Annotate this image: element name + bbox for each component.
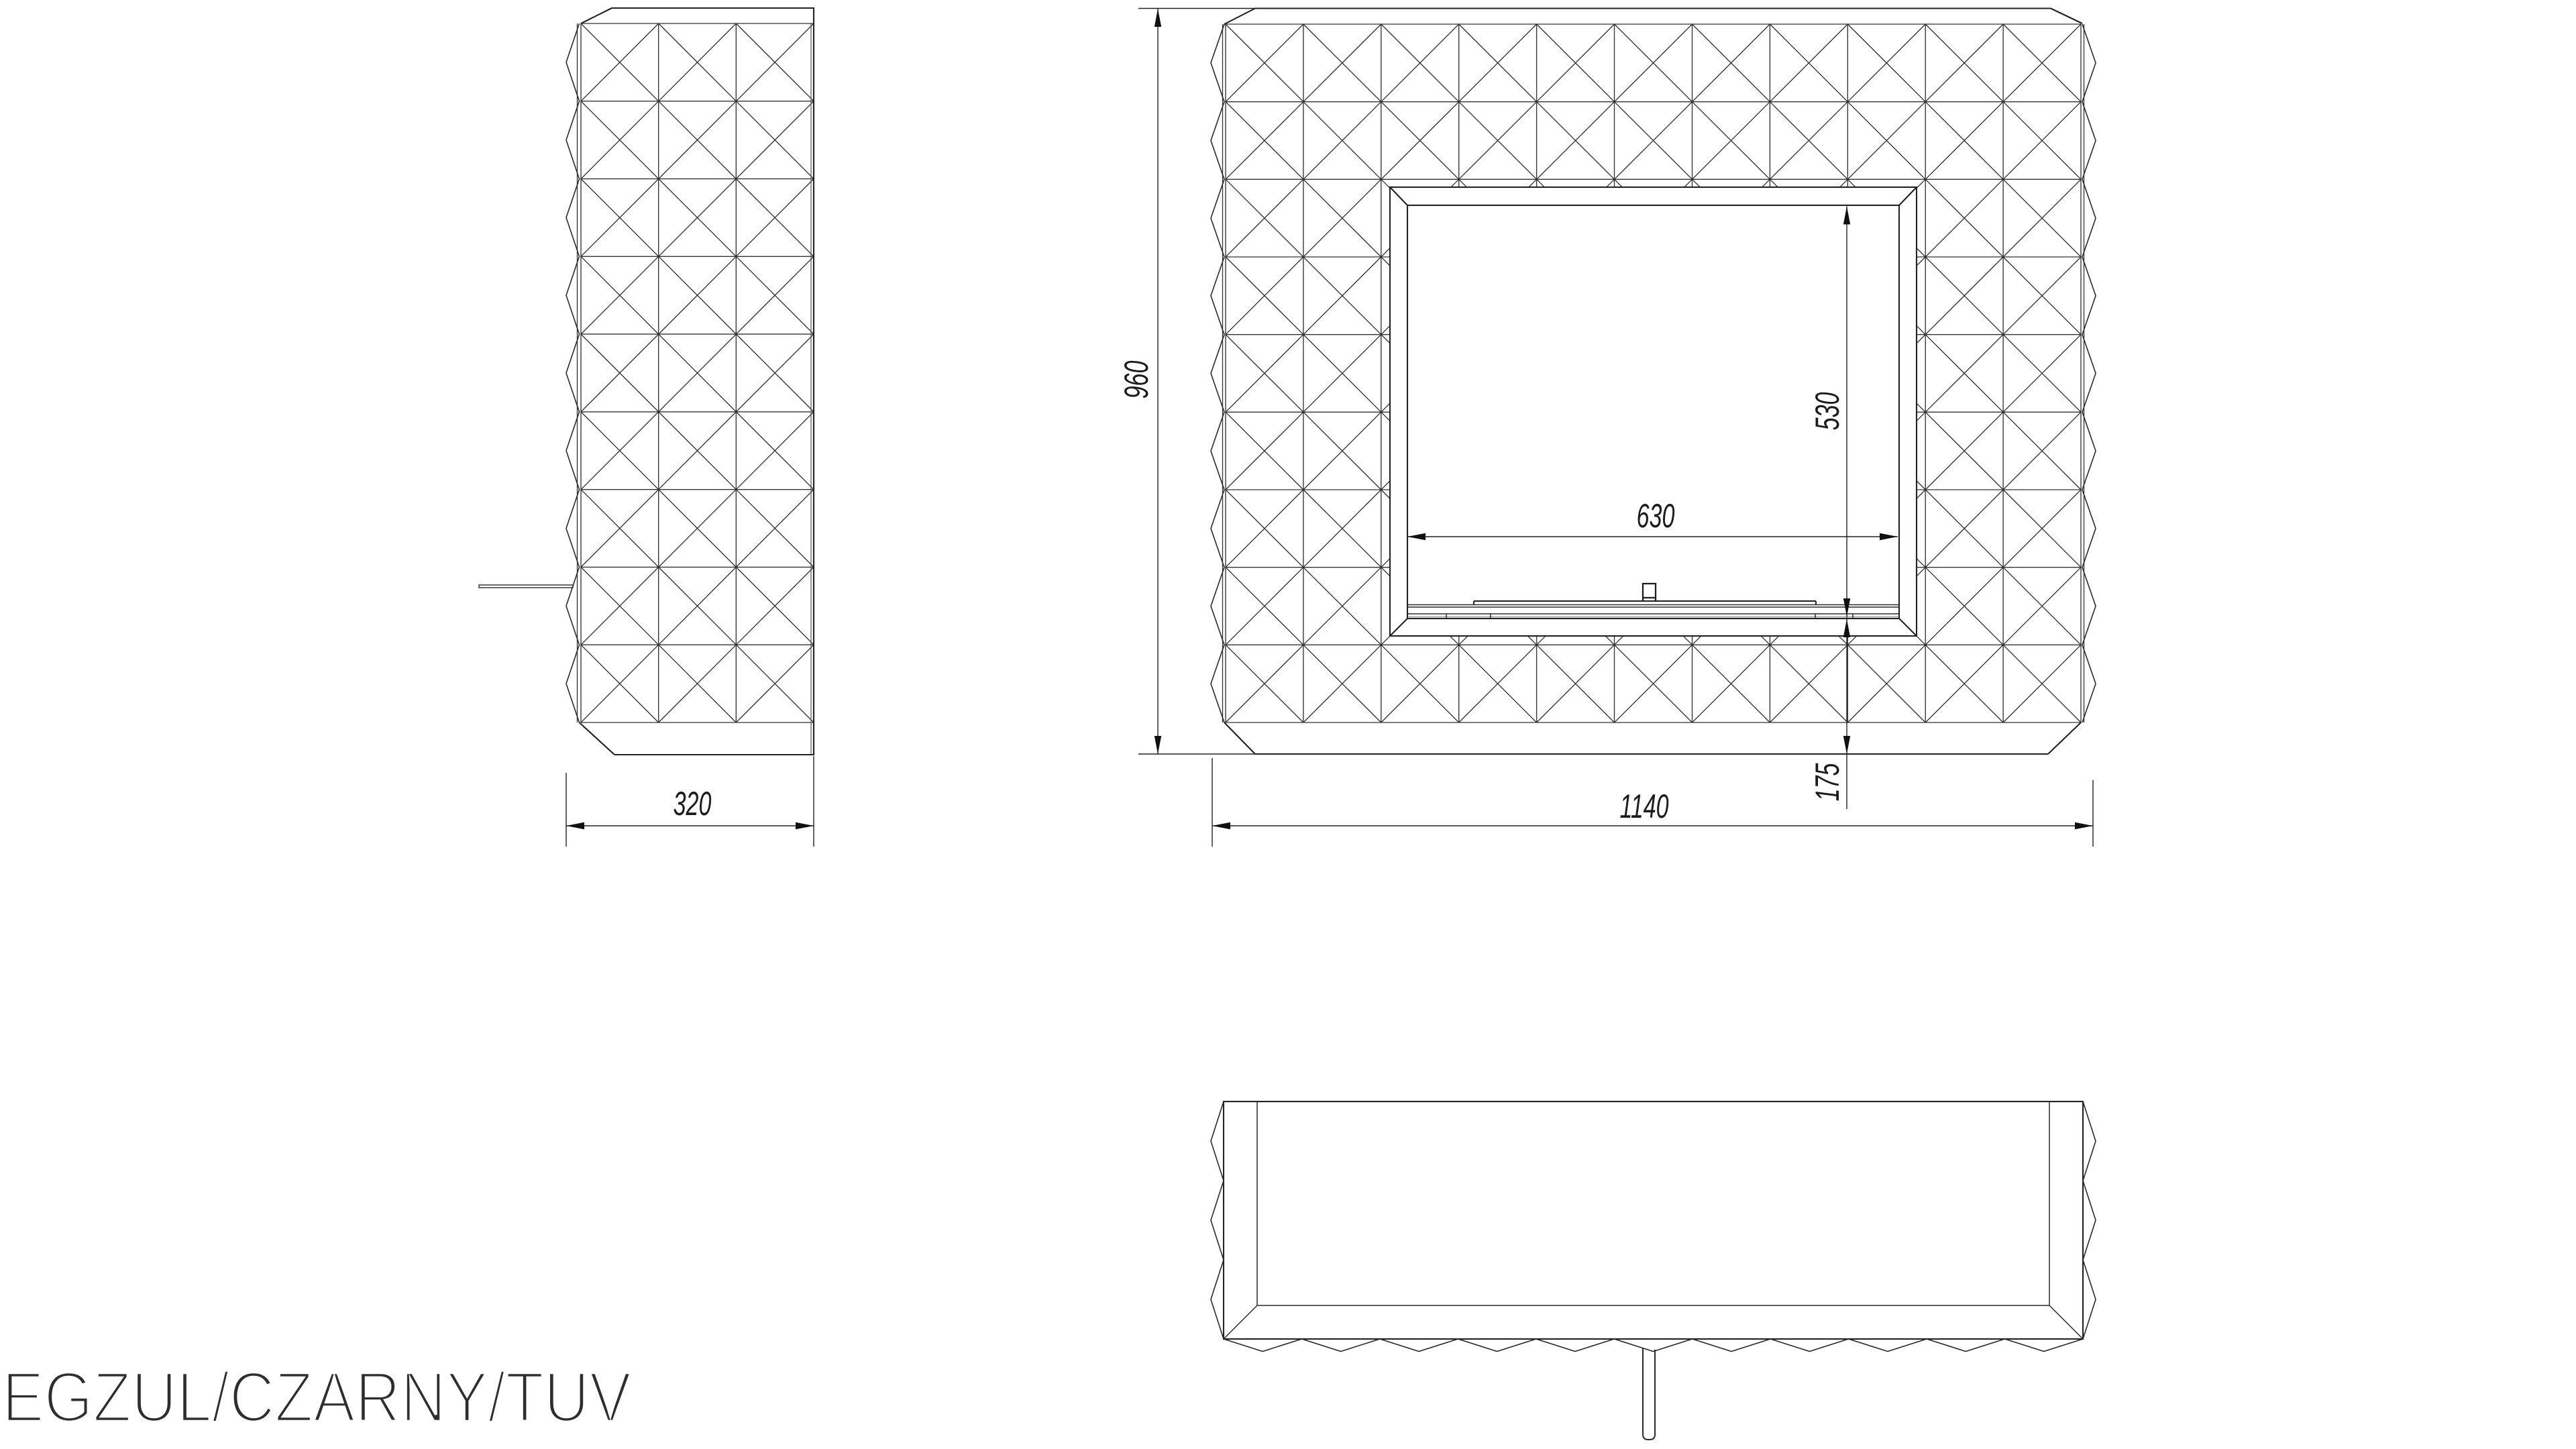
svg-text:530: 530 (1809, 392, 1847, 430)
svg-text:175: 175 (1809, 763, 1847, 801)
svg-text:1140: 1140 (1619, 788, 1668, 826)
svg-text:960: 960 (1118, 360, 1156, 398)
svg-text:EGZUL/CZARNY/TUV: EGZUL/CZARNY/TUV (2, 1358, 631, 1438)
svg-text:320: 320 (674, 786, 712, 823)
svg-text:630: 630 (1637, 498, 1675, 535)
